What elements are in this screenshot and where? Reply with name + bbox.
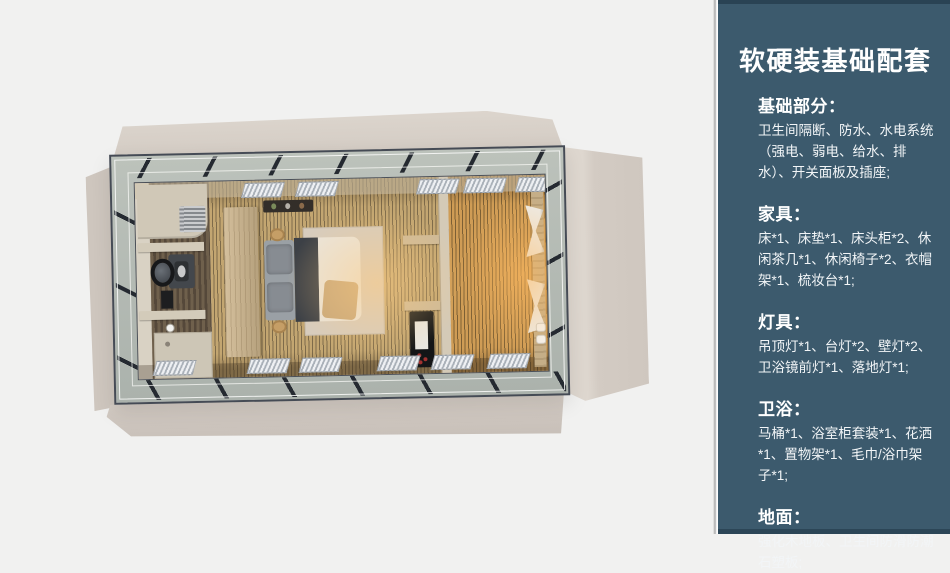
partition-shelf — [403, 235, 439, 245]
spec-section-flooring: 地面： 强化木地板、卫生间防滑防潮石塑板; — [758, 508, 936, 573]
section-body: 马桶*1、浴室柜套装*1、花洒*1、置物架*1、毛巾/浴巾架子*1; — [758, 423, 934, 486]
partition-shelf — [404, 301, 440, 311]
spec-section-furniture: 家具： 床*1、床垫*1、床头柜*2、休闲茶几*1、休闲椅子*2、衣帽架*1、梳… — [758, 205, 936, 291]
louver-panel — [299, 357, 343, 373]
pillow — [267, 282, 294, 313]
toilet — [161, 290, 173, 308]
folded-blanket — [294, 237, 320, 321]
section-heading: 家具： — [758, 205, 936, 225]
louver-panel — [241, 182, 285, 198]
wall-shelf — [263, 200, 313, 213]
floor-drain — [165, 342, 170, 347]
throw-blanket — [322, 280, 359, 321]
spec-section-lighting: 灯具： 吊顶灯*1、台灯*2、壁灯*2、卫浴镜前灯*1、落地灯*1; — [758, 313, 936, 378]
section-heading: 地面： — [758, 508, 936, 528]
louver-panel — [377, 355, 421, 371]
bathroom-shelf — [138, 242, 204, 252]
louver-panel — [487, 353, 531, 369]
towel-radiator — [179, 206, 206, 233]
room-model — [0, 0, 721, 541]
bed — [264, 237, 362, 323]
spec-section-bathroom: 卫浴： 马桶*1、浴室柜套装*1、花洒*1、置物架*1、毛巾/浴巾架子*1; — [758, 400, 936, 486]
room-render — [0, 0, 716, 534]
louver-panel — [247, 358, 291, 374]
section-heading: 灯具： — [758, 313, 936, 333]
rolled-towel — [536, 335, 546, 344]
basin — [177, 265, 185, 277]
louver-panel — [153, 360, 197, 376]
section-heading: 卫浴： — [758, 400, 936, 420]
spec-list: 基础部分： 卫生间隔断、防水、水电系统（强电、弱电、给水、排水）、开关面板及插座… — [758, 97, 936, 573]
room-interior — [134, 174, 550, 381]
room-frame — [109, 145, 570, 404]
section-body: 吊顶灯*1、台灯*2、壁灯*2、卫浴镜前灯*1、落地灯*1; — [758, 336, 934, 378]
louver-panel — [295, 181, 339, 197]
slide: { "sidebar": { "title": "软硬装基础配套", "sect… — [0, 0, 950, 534]
spec-sidebar: 软硬装基础配套 基础部分： 卫生间隔断、防水、水电系统（强电、弱电、给水、排水）… — [718, 0, 950, 534]
page-title: 软硬装基础配套 — [739, 44, 938, 78]
section-body: 强化木地板、卫生间防滑防潮石塑板; — [758, 531, 934, 573]
section-body: 床*1、床垫*1、床头柜*2、休闲茶几*1、休闲椅子*2、衣帽架*1、梳妆台*1… — [758, 228, 934, 291]
wardrobe — [223, 207, 260, 358]
roof-panel-right — [564, 144, 649, 404]
pillow — [266, 244, 293, 275]
cabinet-interior — [415, 321, 429, 349]
louver-panel — [463, 177, 507, 193]
louver-panel — [431, 354, 475, 370]
bathroom-shelf — [139, 310, 205, 320]
section-heading: 基础部分： — [758, 97, 936, 117]
spec-section-basics: 基础部分： 卫生间隔断、防水、水电系统（强电、弱电、给水、排水）、开关面板及插座… — [758, 97, 936, 183]
louver-panel — [515, 177, 549, 193]
section-body: 卫生间隔断、防水、水电系统（强电、弱电、给水、排水）、开关面板及插座; — [758, 120, 934, 183]
rolled-towel — [536, 323, 546, 332]
louver-panel — [416, 178, 460, 194]
